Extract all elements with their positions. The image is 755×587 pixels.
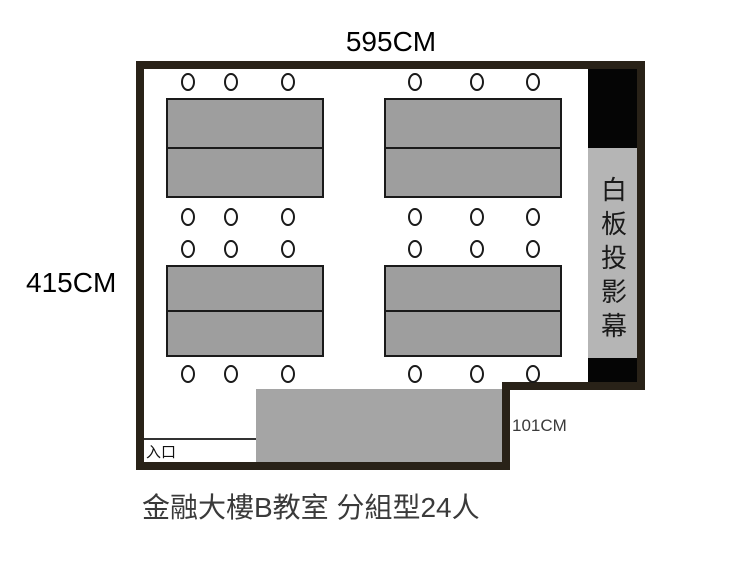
room-width-label: 595CM [136, 28, 646, 56]
chair [470, 365, 484, 383]
table-half [386, 100, 560, 149]
group-table-2 [384, 98, 562, 198]
group-table-3 [166, 265, 324, 357]
chair [224, 240, 238, 258]
chair [408, 208, 422, 226]
chair [281, 240, 295, 258]
table-half [168, 149, 322, 196]
table-half [168, 267, 322, 312]
floor-plan: 595CM 415CM 101CM 白板投影幕 [0, 0, 755, 587]
group-table-1 [166, 98, 324, 198]
table-half [386, 312, 560, 355]
chair [470, 208, 484, 226]
chair [281, 73, 295, 91]
group-table-4 [384, 265, 562, 357]
chair [224, 365, 238, 383]
room-height-label: 415CM [26, 269, 116, 297]
table-half [386, 267, 560, 312]
wall-left [136, 61, 144, 470]
chair [281, 365, 295, 383]
wall-bottom [136, 462, 510, 470]
chair [181, 73, 195, 91]
chair [224, 73, 238, 91]
entrance-label: 入口 [146, 445, 176, 460]
chair [470, 240, 484, 258]
chair [526, 73, 540, 91]
chair [470, 73, 484, 91]
chair [224, 208, 238, 226]
chair [408, 73, 422, 91]
whiteboard-projection-screen: 白板投影幕 [588, 148, 637, 358]
table-half [168, 312, 322, 355]
chair [526, 365, 540, 383]
table-half [168, 100, 322, 149]
step-depth-label: 101CM [512, 417, 567, 434]
chair [281, 208, 295, 226]
chair [181, 208, 195, 226]
chair [526, 240, 540, 258]
chair [181, 365, 195, 383]
chair [408, 365, 422, 383]
chair [526, 208, 540, 226]
chair [408, 240, 422, 258]
wall-right [637, 61, 645, 390]
wall-step-vertical [502, 382, 510, 470]
screen-side-panel-bottom [588, 358, 637, 382]
wall-step-horizontal [502, 382, 645, 390]
screen-label: 白板投影幕 [600, 148, 626, 358]
chair [181, 240, 195, 258]
table-half [386, 149, 560, 196]
caption: 金融大樓B教室 分組型24人 [142, 494, 480, 522]
wall-top [136, 61, 645, 69]
screen-side-panel-top [588, 69, 637, 148]
front-desk [256, 389, 502, 462]
entrance-divider-line [144, 438, 256, 440]
